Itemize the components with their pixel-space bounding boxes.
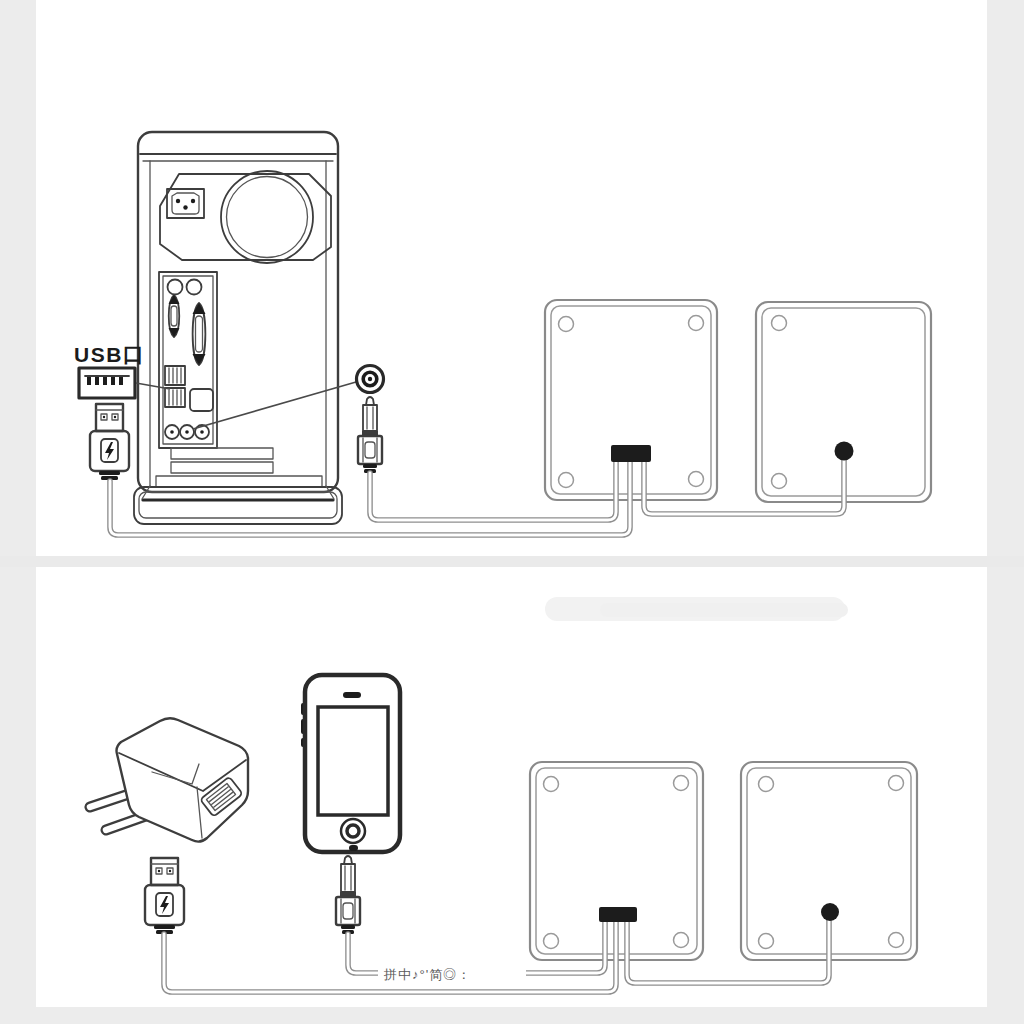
watermark: 拼中♪°'简◎： bbox=[378, 962, 526, 984]
vga-port bbox=[193, 303, 206, 365]
power-bolt-icon bbox=[105, 442, 114, 460]
jack-sleeve bbox=[358, 436, 382, 464]
speaker-terminal-block bbox=[611, 445, 651, 462]
phone-screen bbox=[318, 707, 388, 815]
usb-metal-shell bbox=[151, 858, 178, 885]
ps2-port bbox=[187, 280, 202, 295]
psu-fan bbox=[221, 171, 313, 263]
psu-panel bbox=[160, 171, 331, 263]
jack-tip bbox=[366, 397, 374, 405]
usb-ports-block bbox=[165, 366, 185, 407]
cables-top bbox=[110, 442, 854, 536]
speaker-cable-entry bbox=[835, 442, 854, 461]
audio-jack-plug-top bbox=[358, 397, 382, 473]
diagram-canvas: USB口 bbox=[0, 0, 1024, 1024]
pc-tower-rear bbox=[134, 132, 342, 524]
watermark-text: 拼中♪°'简◎： bbox=[383, 967, 471, 982]
speaker-terminal-block bbox=[599, 907, 637, 922]
usb-plug-bottom bbox=[145, 858, 184, 934]
phone-headphone-port bbox=[349, 845, 358, 851]
usb-port-symbol bbox=[79, 368, 135, 398]
power-bolt-icon bbox=[160, 896, 169, 914]
speaker-cable-entry bbox=[821, 903, 839, 921]
instruction-diagram-page: { "page": { "type": "product-connection-… bbox=[0, 0, 1024, 1024]
usb-metal-shell bbox=[96, 404, 123, 431]
usb-plug-top bbox=[90, 404, 129, 480]
audio-jack-plug-bottom bbox=[336, 856, 360, 934]
expansion-slots bbox=[156, 448, 322, 487]
io-panel bbox=[159, 272, 217, 448]
serial-port bbox=[169, 295, 180, 337]
smartphone bbox=[301, 675, 400, 852]
phone-earpiece bbox=[343, 692, 361, 698]
mobile-connection-scene: 拼中♪°'简◎： bbox=[90, 597, 917, 992]
usb-label: USB口 bbox=[74, 343, 145, 366]
power-socket bbox=[167, 189, 204, 218]
tower-base bbox=[134, 486, 342, 524]
jack-tip bbox=[344, 856, 352, 864]
ps2-port bbox=[168, 280, 183, 295]
jack-sleeve bbox=[336, 897, 360, 925]
lan-port bbox=[190, 389, 213, 411]
pc-connection-scene: USB口 bbox=[74, 132, 931, 535]
power-adapter bbox=[90, 718, 248, 841]
audio-target bbox=[193, 366, 384, 430]
usb-port-callout: USB口 bbox=[74, 343, 170, 398]
